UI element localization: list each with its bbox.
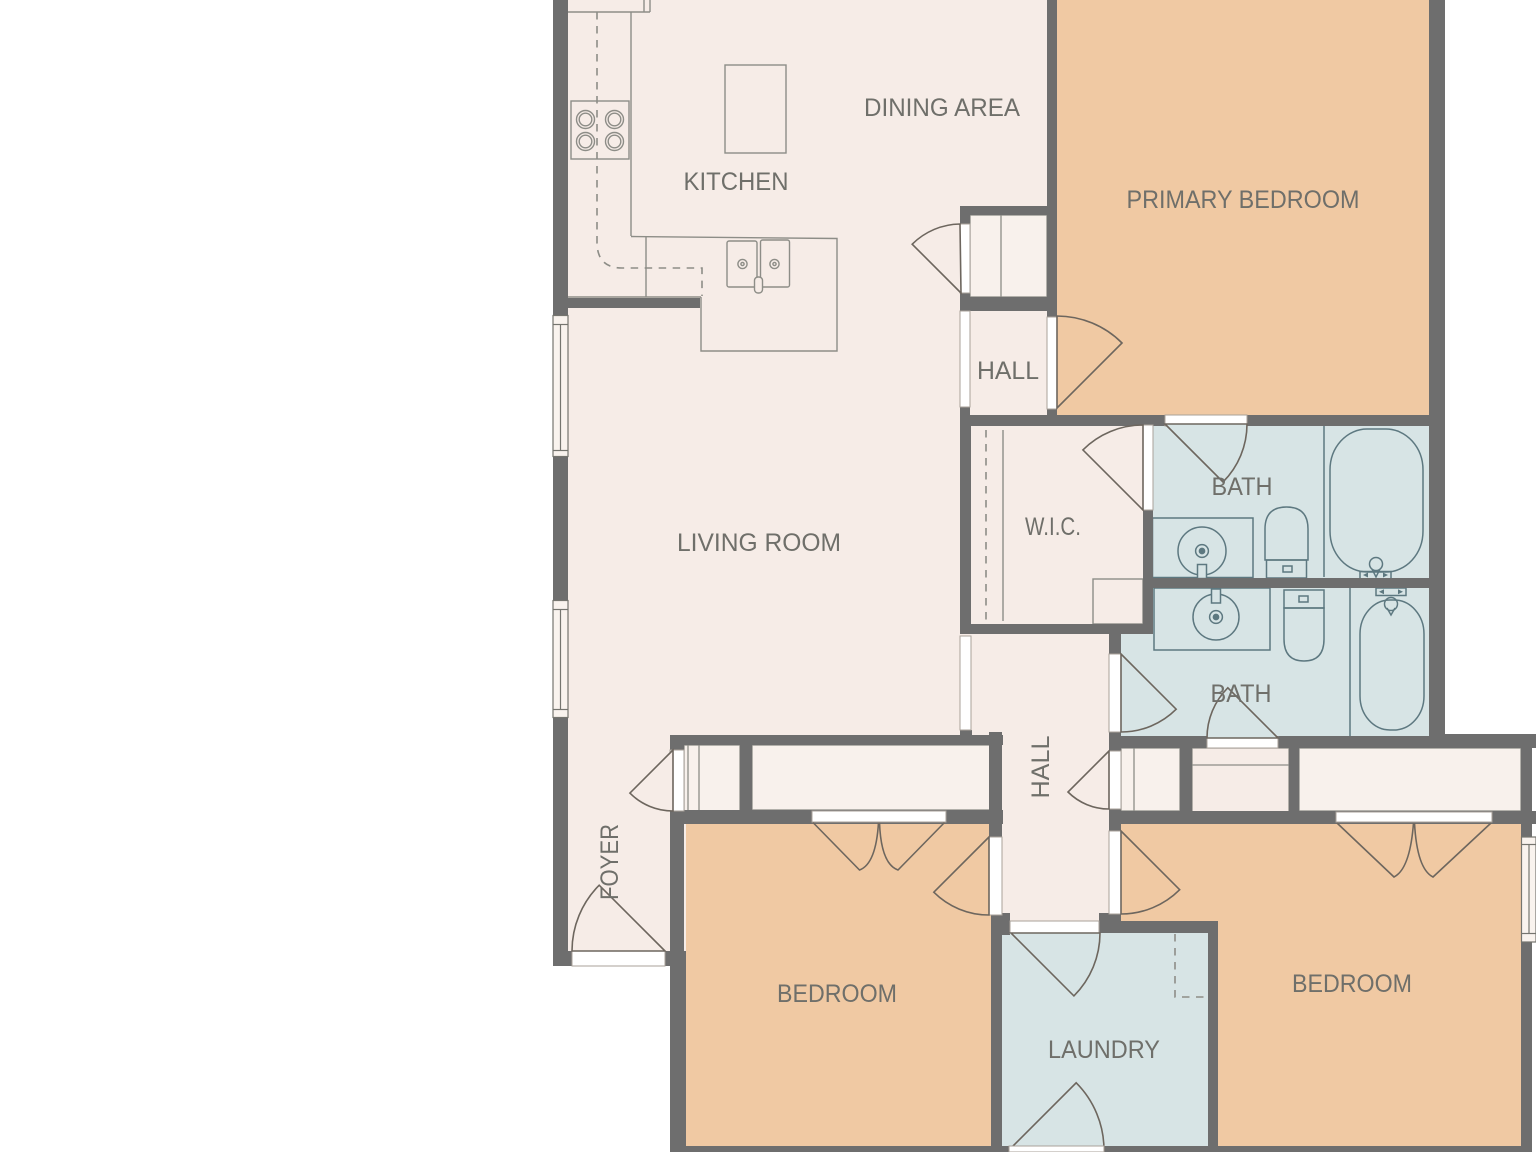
svg-text:HALL: HALL — [977, 357, 1039, 385]
svg-text:W.I.C.: W.I.C. — [1025, 513, 1081, 541]
svg-text:PRIMARY BEDROOM: PRIMARY BEDROOM — [1127, 186, 1360, 214]
svg-text:BATH: BATH — [1212, 473, 1273, 501]
svg-text:LIVING ROOM: LIVING ROOM — [677, 529, 841, 557]
svg-text:DINING AREA: DINING AREA — [864, 94, 1020, 122]
svg-text:KITCHEN: KITCHEN — [684, 168, 789, 196]
svg-text:LAUNDRY: LAUNDRY — [1048, 1036, 1160, 1064]
svg-text:BEDROOM: BEDROOM — [777, 980, 897, 1008]
svg-text:BATH: BATH — [1211, 680, 1272, 708]
svg-text:FOYER: FOYER — [596, 824, 624, 900]
svg-text:HALL: HALL — [1027, 735, 1055, 798]
svg-text:BEDROOM: BEDROOM — [1292, 970, 1412, 998]
